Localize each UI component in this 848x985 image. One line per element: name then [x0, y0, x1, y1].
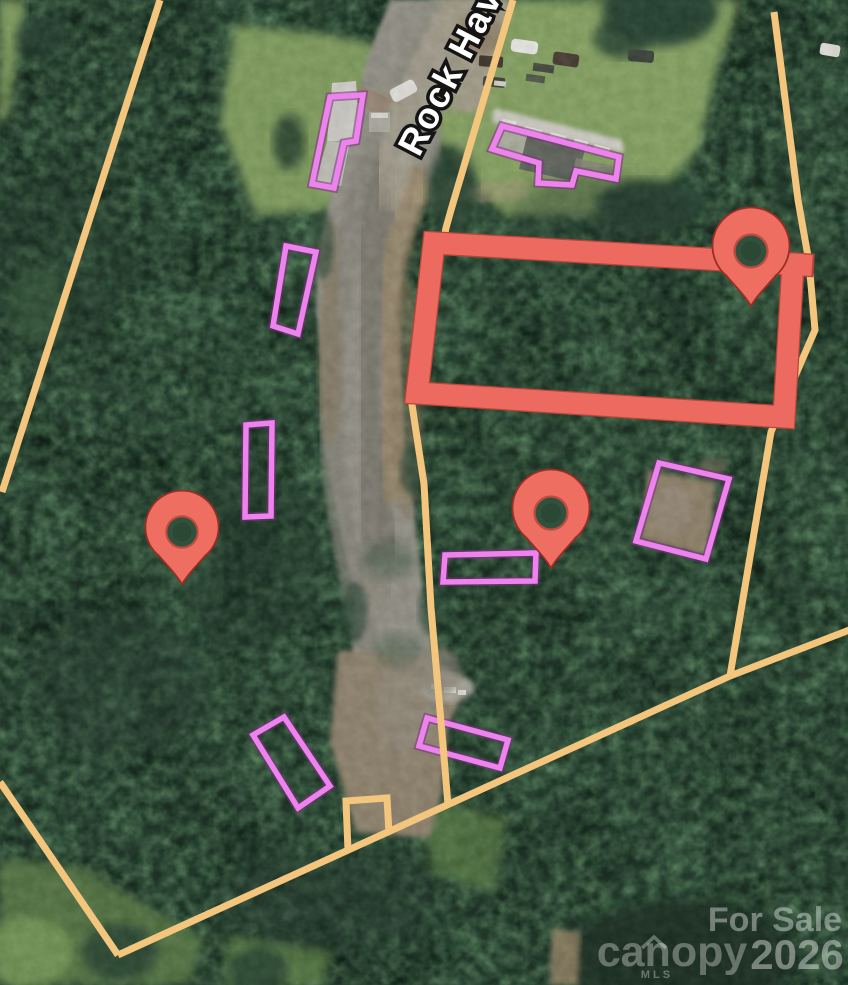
svg-text:2026: 2026	[750, 931, 843, 978]
svg-text:MLS: MLS	[641, 969, 673, 981]
